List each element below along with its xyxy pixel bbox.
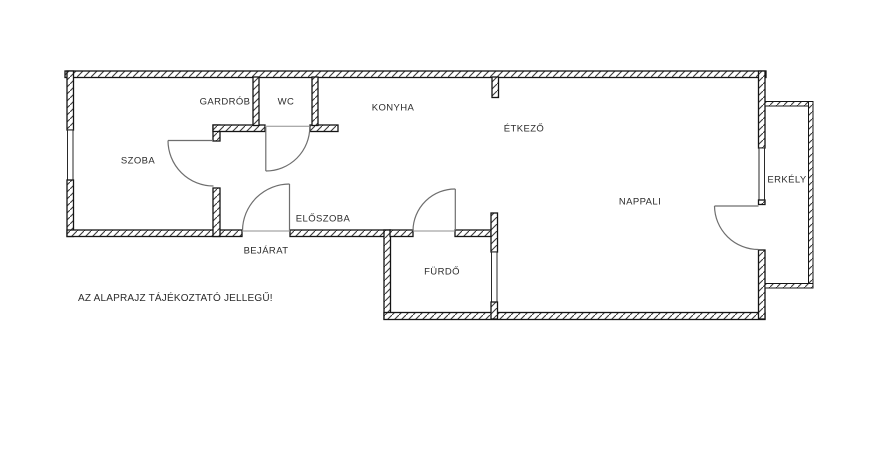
wall-bottom-east	[384, 313, 765, 320]
wall-left-upper	[67, 71, 74, 130]
window-nappali-erkely	[759, 148, 765, 200]
door-arc-szoba	[168, 141, 214, 187]
room-label-nappali: NAPPALI	[619, 197, 661, 208]
wall-right-mid-stub	[759, 200, 766, 205]
door-arc-wc	[266, 127, 310, 171]
wall-bottom-west-b	[290, 230, 390, 237]
wall-furdo-top-east	[455, 230, 491, 237]
room-label-szoba: SZOBA	[121, 156, 155, 167]
room-label-erkely: ERKÉLY	[767, 175, 806, 186]
wall-erkely-top	[765, 102, 813, 107]
wall-furdo-right-upper	[491, 213, 498, 252]
wall-szoba-partition-lower	[213, 188, 220, 237]
wall-top	[65, 71, 766, 78]
wall-furdo-top-west	[390, 230, 413, 237]
door-arc-erkely	[715, 206, 759, 250]
wall-right-upper	[759, 71, 766, 148]
floorplan-drawing	[0, 0, 894, 450]
wall-left-lower	[67, 180, 74, 237]
wall-wc-right	[312, 77, 318, 126]
window-szoba-left	[68, 130, 74, 180]
wall-furdo-right-thin	[492, 252, 498, 302]
room-label-furdo: FÜRDŐ	[424, 267, 460, 278]
wall-erkely-bottom	[765, 284, 813, 289]
room-label-eloszoba: ELŐSZOBA	[296, 214, 350, 225]
wall-konyha-stub	[492, 77, 499, 98]
room-label-bejarat: BEJÁRAT	[244, 246, 289, 257]
wall-furdo-left	[384, 230, 391, 319]
room-label-wc: WC	[278, 97, 295, 108]
door-arc-entrance	[243, 184, 290, 231]
room-label-gardrob: GARDRÓB	[200, 97, 251, 108]
wall-erkely-right	[809, 102, 814, 289]
room-label-etkezo: ÉTKEZŐ	[504, 124, 544, 135]
door-arc-furdo	[413, 189, 455, 231]
wall-right-lower	[759, 250, 766, 319]
disclaimer-text: AZ ALAPRAJZ TÁJÉKOZTATÓ JELLEGŰ!	[78, 293, 273, 304]
room-label-konyha: KONYHA	[372, 103, 415, 114]
wall-furdo-right-lower	[491, 302, 498, 319]
floorplan-canvas: SZOBA GARDRÓB WC KONYHA ÉTKEZŐ ELŐSZOBA …	[0, 0, 894, 450]
wall-gardrob-wc	[253, 77, 259, 126]
